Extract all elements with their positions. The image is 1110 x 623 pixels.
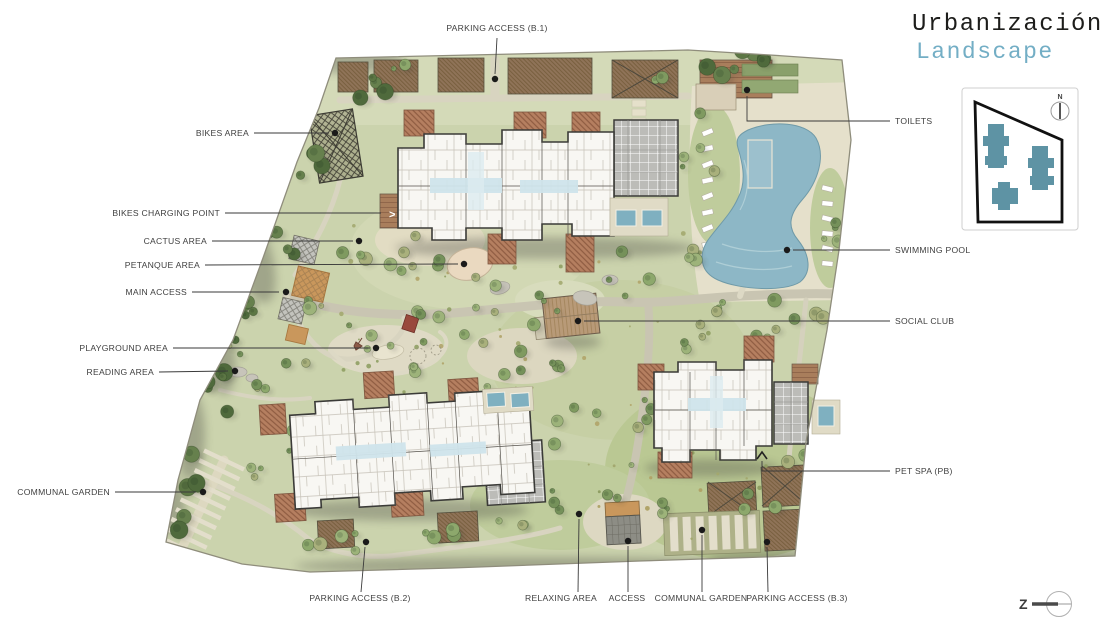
north-letter: Z [1019,596,1028,612]
plan-label-text: CACTUS AREA [144,236,207,246]
plan-label-text: PETANQUE AREA [125,260,200,270]
title-block: Urbanización Landscape [912,11,1103,65]
plan-label-text: PET SPA (PB) [895,466,953,476]
plan-label-text: SWIMMING POOL [895,245,970,255]
leader-dot [784,247,790,253]
project-title: Urbanización [912,11,1103,38]
access-pavilion [605,501,641,545]
plan-label-text: PARKING ACCESS (B.3) [746,593,847,603]
building-1-annex [614,120,678,196]
masterplan-page: > [0,0,1110,623]
leader-dot [363,539,369,545]
project-subtitle: Landscape [916,39,1054,65]
leader-dot [332,130,338,136]
plan-label-text: PLAYGROUND AREA [79,343,168,353]
plan-label-text: COMMUNAL GARDEN [17,487,110,497]
leader-dot [283,289,289,295]
plan-label-text: RELAXING AREA [525,593,597,603]
plan-label-text: TOILETS [895,116,932,126]
leader-dot [461,261,467,267]
key-plan: N [962,88,1078,230]
leader-dot [699,527,705,533]
plan-label-text: ACCESS [609,593,646,603]
leader-dot [576,511,582,517]
leader-dot [625,538,631,544]
north-arrow-main: Z [1019,592,1072,617]
north-label-keyplan: N [1057,94,1062,101]
site-plan: > [0,0,1110,623]
plan-label-text: PARKING ACCESS (B.1) [446,23,547,33]
plan-label-text: READING AREA [87,367,154,377]
leader-dot [200,489,206,495]
plan-label-text: MAIN ACCESS [126,287,188,297]
plan-label-text: COMMUNAL GARDEN [655,593,748,603]
leader-dot [232,368,238,374]
plan-label-text: BIKES AREA [196,128,249,138]
leader-dot [764,539,770,545]
communal-garden-bottom-beds [663,510,760,555]
leader-dot [356,238,362,244]
leader-dot [373,345,379,351]
plan-label-text: BIKES CHARGING POINT [112,208,220,218]
leader-dot [492,76,498,82]
plan-label-text: PARKING ACCESS (B.2) [309,593,410,603]
leader-dot [575,318,581,324]
leader-dot [744,87,750,93]
charging-arrow-icon: > [389,209,395,221]
plan-label-text: SOCIAL CLUB [895,316,954,326]
